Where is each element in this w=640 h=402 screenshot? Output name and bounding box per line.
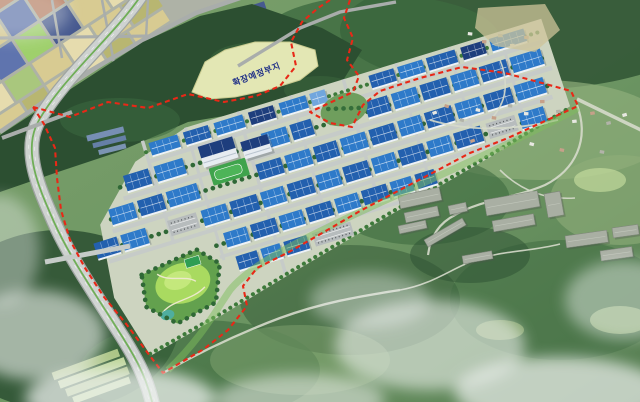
village-house — [508, 104, 513, 108]
village-house — [482, 40, 487, 43]
village-house — [492, 116, 497, 120]
village-house — [524, 112, 529, 115]
village-house — [572, 119, 577, 123]
village-house — [468, 32, 473, 36]
village-house — [540, 100, 545, 103]
village-house — [556, 110, 561, 114]
aerial-masterplan-image: 확장예정부지 — [0, 0, 640, 402]
